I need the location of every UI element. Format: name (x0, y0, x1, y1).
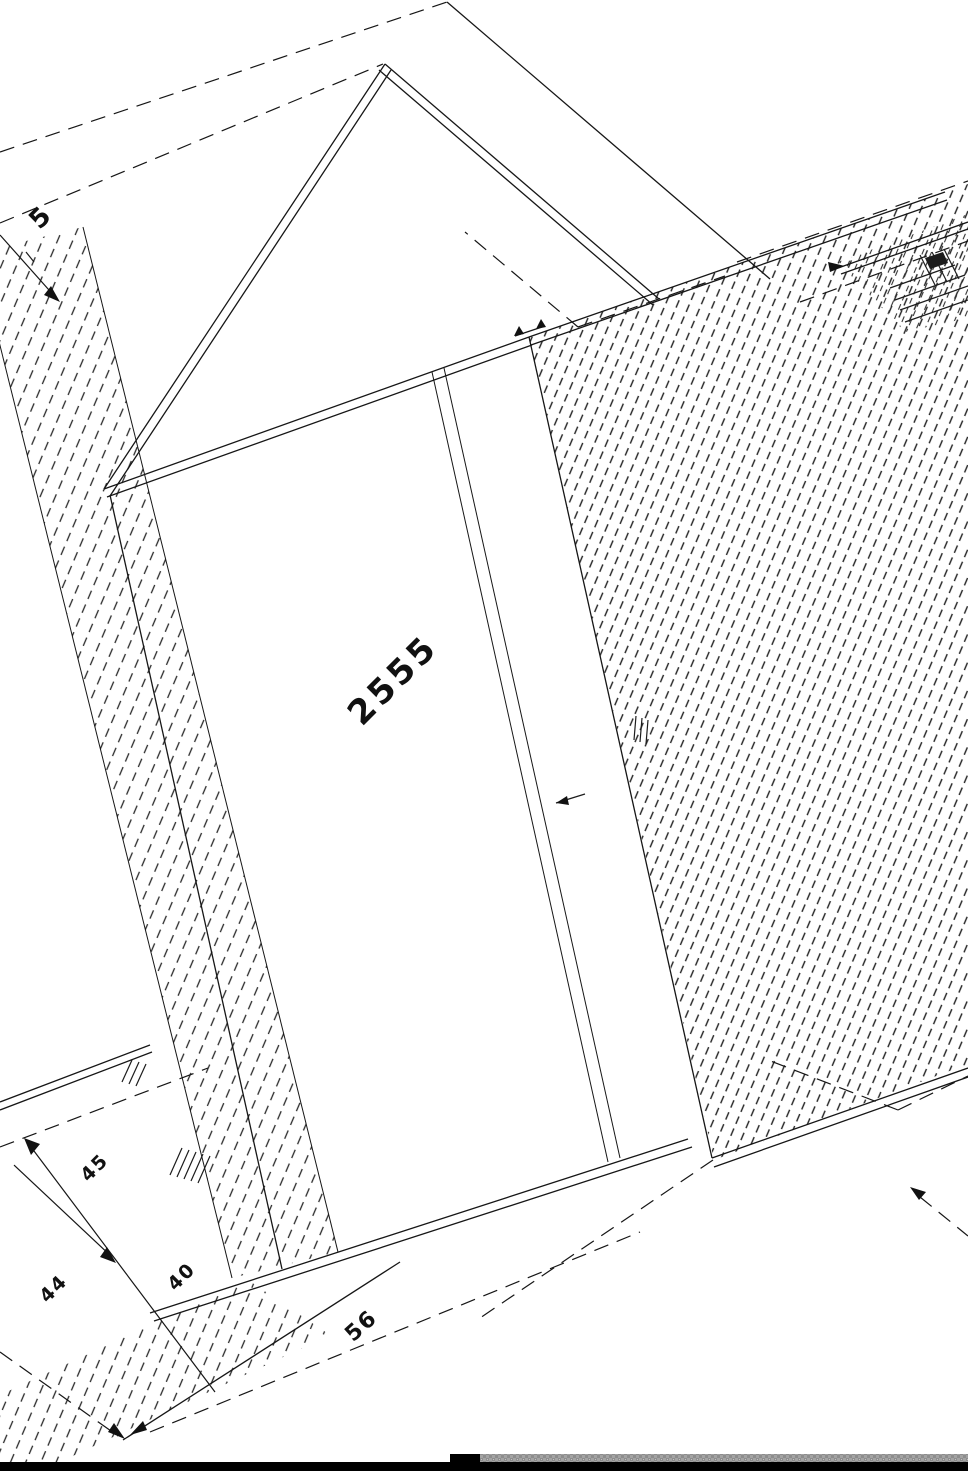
footer-black-bar (0, 1462, 968, 1471)
hatch-regions (0, 184, 968, 1462)
dimension-text-bottom: 56 (340, 1305, 382, 1347)
technical-drawing-canvas: 2555 5 45 44 40 56 (0, 0, 968, 1471)
dimension-text-main: 2555 (340, 627, 447, 734)
arrow-left-dim-bottom (100, 1247, 116, 1263)
arrow-left-dim-top (24, 1138, 40, 1155)
dimension-text-left-lower: 44 (35, 1270, 72, 1307)
hinge-detail-left-upper (122, 1060, 146, 1086)
hatch-left-band (0, 227, 338, 1278)
footer-gray-strip (480, 1454, 968, 1462)
hatch-center-panel (529, 184, 968, 1160)
dimension-text-top-left: 5 (23, 201, 57, 235)
drawing-page: 2555 5 45 44 40 56 (0, 0, 968, 1471)
arrow-tick-b (536, 319, 546, 329)
dimension-text-left-upper: 45 (76, 1149, 113, 1186)
footer-black-segment (450, 1454, 480, 1462)
arrow-tick-a (514, 326, 524, 336)
arrow-right-lower (910, 1187, 926, 1200)
dimension-text-left-mid: 40 (163, 1258, 200, 1295)
footer-bars (0, 1454, 968, 1471)
